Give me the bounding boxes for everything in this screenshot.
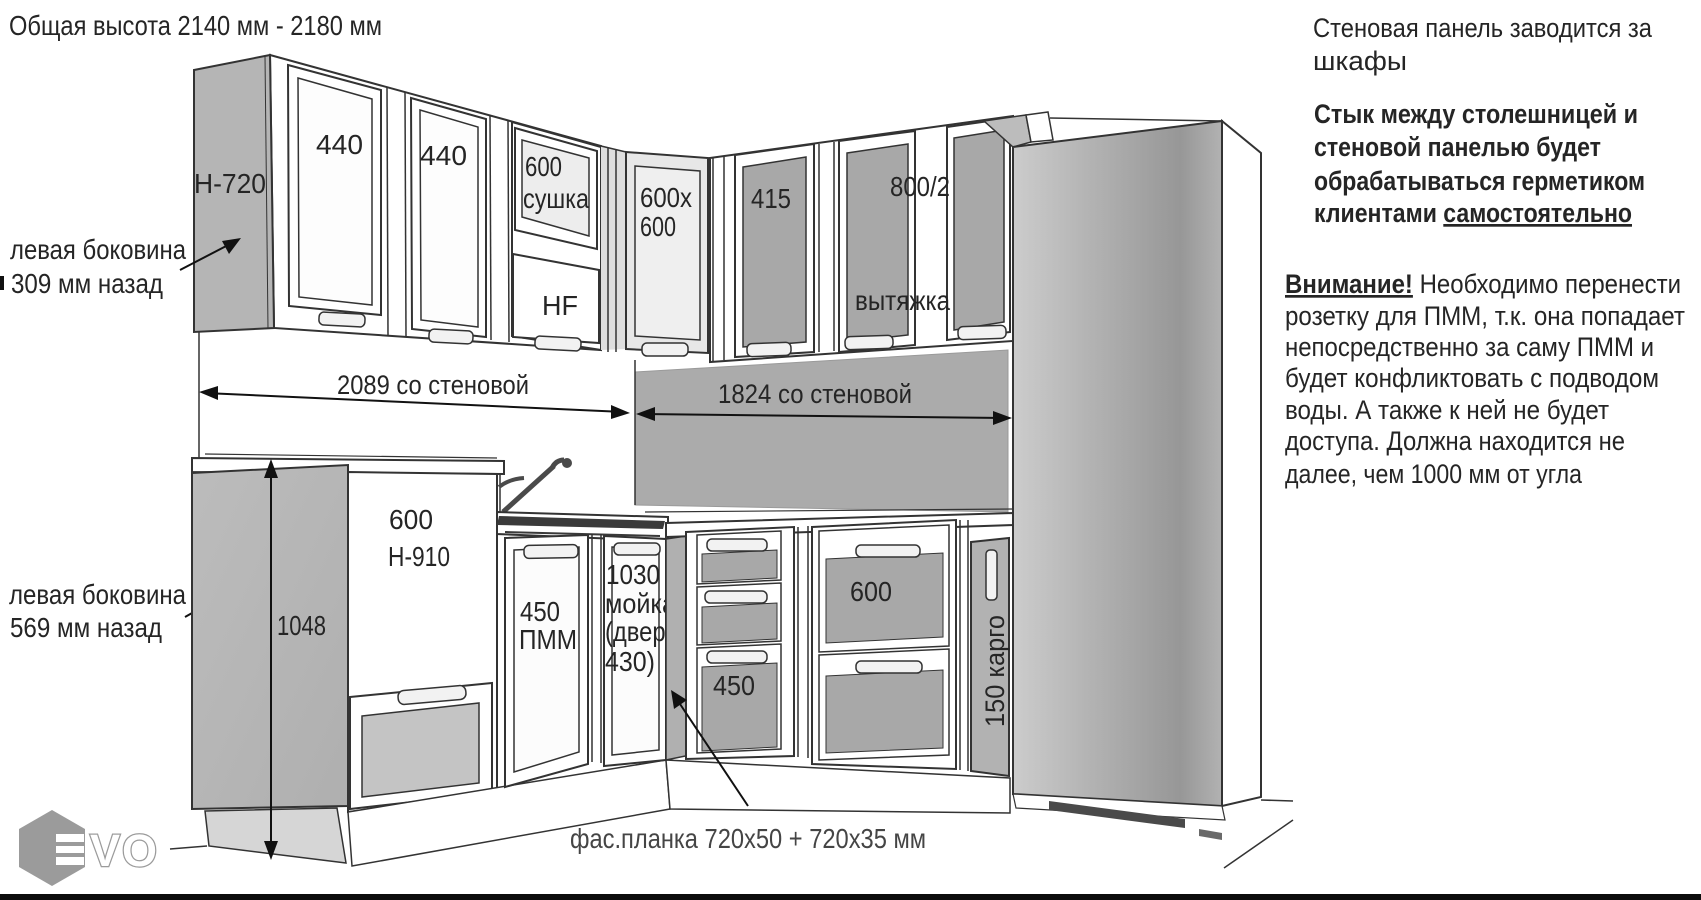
svg-text:розетку для ПММ, т.к. она попа: розетку для ПММ, т.к. она попадает [1285, 301, 1685, 331]
svg-text:600х: 600х [640, 182, 692, 213]
svg-text:левая боковина: левая боковина [10, 234, 186, 265]
svg-text:сушка: сушка [523, 183, 589, 214]
svg-text:150 карго: 150 карго [980, 615, 1010, 727]
svg-text:Общая высота 2140 мм - 2180 мм: Общая высота 2140 мм - 2180 мм [9, 10, 382, 41]
svg-text:440: 440 [420, 140, 467, 171]
svg-text:600: 600 [525, 151, 562, 182]
svg-text:вытяжка: вытяжка [855, 285, 950, 316]
svg-text:450: 450 [713, 670, 755, 701]
svg-text:569 мм назад: 569 мм назад [10, 612, 162, 643]
svg-text:доступа. Должна находится не: доступа. Должна находится не [1285, 426, 1625, 456]
svg-text:будет конфликтовать с подводом: будет конфликтовать с подводом [1285, 363, 1659, 393]
svg-text:левая боковина: левая боковина [9, 579, 186, 610]
svg-text:стеновой панелью будет: стеновой панелью будет [1314, 132, 1601, 162]
svg-text:Н-910: Н-910 [388, 541, 450, 572]
svg-text:600: 600 [850, 576, 892, 607]
svg-text:600: 600 [640, 211, 676, 242]
svg-text:430): 430) [605, 646, 655, 677]
svg-text:непосредственно за саму ПММ и: непосредственно за саму ПММ и [1285, 332, 1654, 362]
svg-text:Стеновая панель заводится за: Стеновая панель заводится за [1313, 13, 1653, 43]
svg-text:воды. А также к ней не будет: воды. А также к ней не будет [1285, 395, 1609, 425]
svg-text:2089 со стеновой: 2089 со стеновой [337, 370, 529, 400]
svg-text:Внимание! Необходимо перенести: Внимание! Необходимо перенести [1285, 269, 1681, 299]
svg-text:фас.планка 720х50 + 720х35 мм: фас.планка 720х50 + 720х35 мм [570, 823, 926, 854]
svg-text:клиентами самостоятельно: клиентами самостоятельно [1314, 198, 1632, 228]
svg-text:450: 450 [520, 596, 560, 627]
svg-text:309 мм назад: 309 мм назад [11, 268, 163, 299]
svg-text:800/2: 800/2 [890, 171, 950, 202]
svg-text:1824 со стеновой: 1824 со стеновой [718, 379, 912, 409]
svg-text:шкафы: шкафы [1313, 46, 1407, 76]
svg-text:ПММ: ПММ [519, 624, 577, 655]
svg-text:415: 415 [751, 183, 791, 214]
svg-text:Н-720: Н-720 [194, 168, 266, 199]
svg-text:далее, чем 1000 мм от угла: далее, чем 1000 мм от угла [1285, 459, 1583, 489]
svg-text:Стык между столешницей и: Стык между столешницей и [1314, 99, 1638, 129]
svg-text:1048: 1048 [277, 610, 326, 641]
svg-text:обрабатываться герметиком: обрабатываться герметиком [1314, 166, 1645, 196]
svg-text:1030: 1030 [606, 559, 660, 590]
svg-text:HF: HF [542, 290, 578, 321]
svg-text:440: 440 [316, 129, 363, 160]
svg-text:600: 600 [389, 504, 433, 535]
svg-text:VO: VO [90, 825, 159, 876]
